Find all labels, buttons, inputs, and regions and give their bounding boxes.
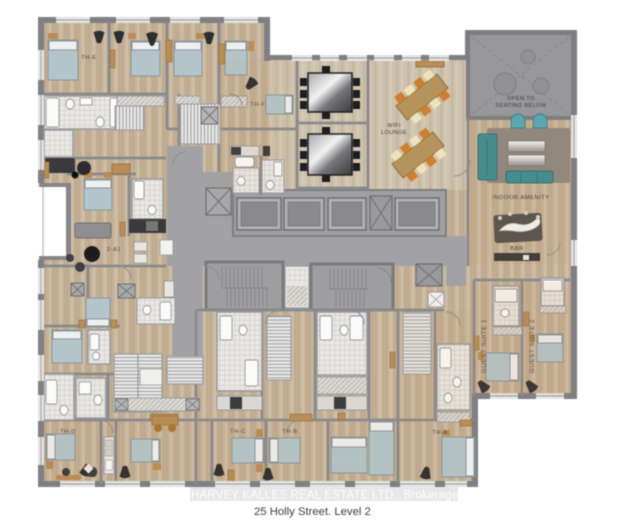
svg-text:OPEN TO: OPEN TO: [507, 96, 535, 102]
svg-text:2-A1: 2-A1: [107, 247, 121, 253]
svg-text:LOUNGE: LOUNGE: [381, 130, 407, 136]
svg-text:WIFI: WIFI: [387, 123, 400, 129]
svg-text:HARVEY KALLES REAL ESTATE LTD.: HARVEY KALLES REAL ESTATE LTD., Brokerag…: [191, 490, 458, 502]
svg-text:TH-E: TH-E: [81, 55, 96, 61]
svg-text:25 Holly Street. Level 2: 25 Holly Street. Level 2: [254, 506, 371, 518]
svg-text:SEATING BELOW: SEATING BELOW: [495, 103, 546, 109]
